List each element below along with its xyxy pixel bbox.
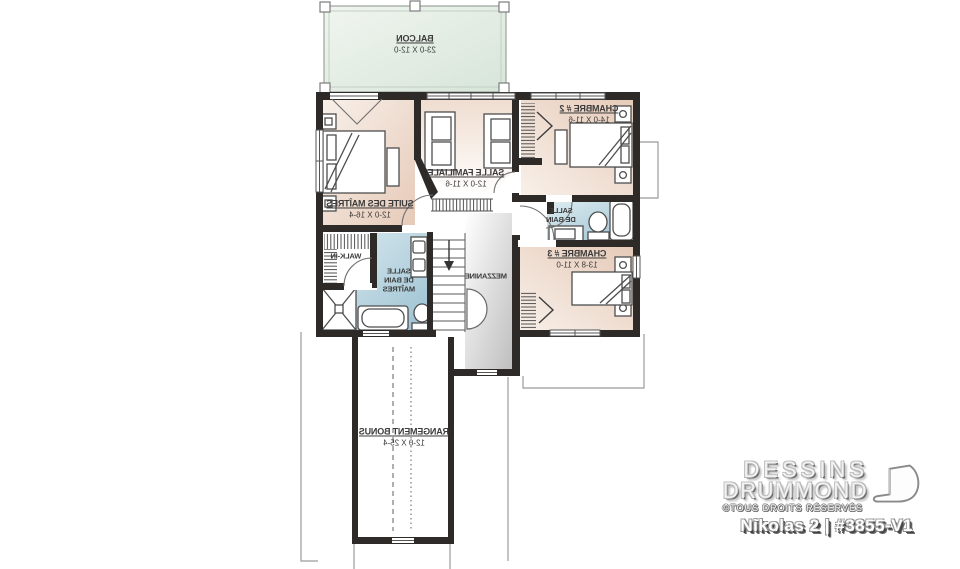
walkin-rod-top [324, 234, 370, 249]
label-family-room: SALLE FAMILIALE12-0 X 11-6 [428, 167, 505, 188]
bedroom3-nightstand-top [615, 257, 631, 273]
bedroom3-closet-rod [521, 292, 536, 329]
bonus-window [392, 538, 414, 543]
bedroom2-nightstand-bottom [615, 167, 631, 183]
label-bedroom2: CHAMBRE # 214-0 X 11-6 [560, 103, 619, 124]
label-bathroom: SALLE DE BAIN [546, 207, 575, 225]
master-suite-window [316, 130, 323, 192]
brand-wordmark: DESSINS DRUMMOND [723, 459, 868, 501]
brand-line-2: DRUMMOND [723, 480, 868, 501]
bedroom2-closet-rod [521, 103, 535, 158]
master-bench [387, 148, 399, 186]
bedroom2-window [531, 93, 605, 99]
bedroom3-side-window [633, 256, 640, 278]
label-master-bath: SALLE DE BAIN MAÎTRES [383, 268, 415, 295]
attic-access [363, 331, 389, 336]
mezzanine-window [477, 370, 497, 375]
bathroom-toilet [588, 212, 609, 240]
floor-plan-page: BALCON23-0 X 12-0 SUITE DES MAÎTRES12-0 … [0, 0, 960, 569]
brand-line-1: DESSINS [723, 459, 868, 480]
bathroom-tub [610, 200, 633, 240]
bedroom3-bottom-window [550, 330, 600, 336]
label-master-suite: SUITE DES MAÎTRES12-0 X 16-4 [326, 198, 413, 219]
drummond-logo-icon [872, 458, 920, 510]
plan-title: Nikolas 2 | #3855-V1 [740, 516, 913, 536]
patio-door-track [330, 93, 378, 99]
label-bonus-storage: RANGEMENT BONUS12-0 X 25-4 [359, 426, 449, 447]
master-nightstand-top [321, 114, 336, 129]
stair-railing [431, 199, 493, 211]
bedroom3-bed [572, 272, 632, 305]
master-tub [358, 306, 408, 330]
family-room-window [427, 93, 515, 99]
label-bedroom3: CHAMBRE # 313-8 X 11-0 [548, 248, 607, 269]
copyright-text: ©TOUS DROITS RÉSERVÉS [723, 503, 863, 513]
bedroom2-bench [555, 130, 567, 164]
sofa-left [425, 112, 455, 170]
master-shower [322, 288, 356, 330]
master-bed [323, 131, 385, 193]
stair-landing-lower [454, 337, 465, 368]
label-balcony: BALCON23-0 X 12-0 [394, 33, 436, 54]
bedroom2-bed [570, 123, 632, 167]
walkin-door-arc [344, 258, 372, 286]
sofa-right [484, 114, 514, 168]
label-walkin: WALK-IN [331, 253, 362, 262]
label-mezzanine: MEZZANINE [465, 273, 507, 282]
